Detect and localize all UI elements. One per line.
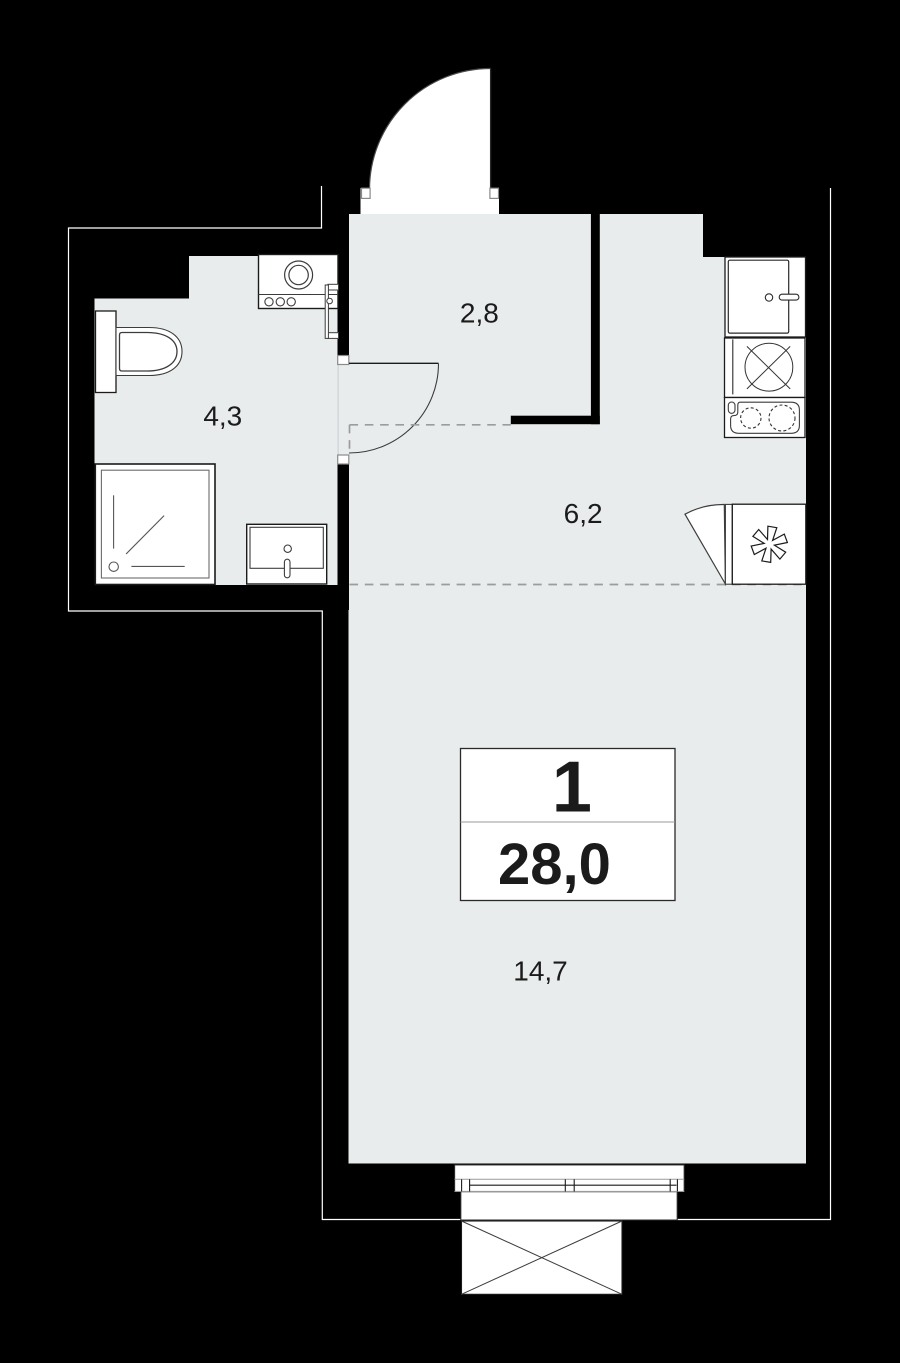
svg-text:1: 1 (552, 747, 592, 827)
svg-text:6,2: 6,2 (564, 498, 603, 529)
svg-text:2,8: 2,8 (460, 297, 499, 328)
svg-text:28,0: 28,0 (498, 832, 611, 897)
svg-text:14,7: 14,7 (513, 956, 568, 987)
svg-text:4,3: 4,3 (203, 400, 242, 431)
